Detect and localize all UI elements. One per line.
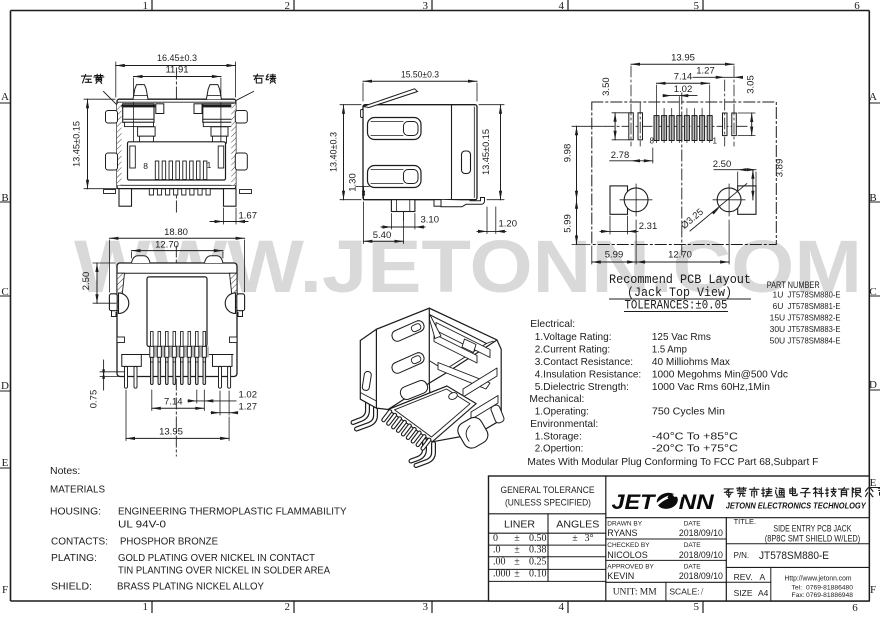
svg-text:CONTACTS:: CONTACTS: — [51, 536, 108, 548]
svg-text:UL 94V-0: UL 94V-0 — [118, 519, 166, 531]
svg-text:GOLD PLATING OVER NICKEL IN CO: GOLD PLATING OVER NICKEL IN CONTACT — [118, 552, 316, 564]
svg-text:TOLERANCES:±0.05: TOLERANCES:±0.05 — [625, 299, 728, 313]
svg-text:A: A — [1, 91, 9, 103]
svg-text:40 Milliohms Max: 40 Milliohms Max — [652, 356, 731, 368]
svg-text:1000 Megohms Min@500 Vdc: 1000 Megohms Min@500 Vdc — [652, 368, 788, 380]
svg-text:Fax:: Fax: — [792, 592, 805, 599]
svg-text:CHECKED BY: CHECKED BY — [607, 542, 650, 549]
svg-text:8: 8 — [143, 161, 148, 171]
svg-text:PHOSPHOR BRONZE: PHOSPHOR BRONZE — [120, 536, 218, 548]
svg-text:3°: 3° — [585, 533, 594, 544]
svg-text:1.02: 1.02 — [239, 390, 258, 401]
svg-text:JT578SM884-E: JT578SM884-E — [788, 336, 841, 346]
svg-text:Mates With Modular Plug Confor: Mates With Modular Plug Conforming To FC… — [527, 456, 818, 468]
svg-text:.0: .0 — [493, 544, 501, 555]
svg-text:F: F — [2, 584, 8, 596]
svg-text:JT578SM881-E: JT578SM881-E — [788, 301, 841, 311]
svg-text:±: ± — [514, 557, 520, 568]
svg-text:7.14: 7.14 — [164, 397, 183, 408]
svg-text:A: A — [869, 91, 877, 103]
svg-text:0: 0 — [493, 533, 498, 544]
svg-text:15.50±0.3: 15.50±0.3 — [401, 70, 439, 81]
svg-text:MM: MM — [640, 588, 657, 598]
svg-text:2018/09/10: 2018/09/10 — [679, 571, 723, 581]
svg-text:A4: A4 — [758, 588, 769, 598]
svg-text:JET: JET — [612, 490, 657, 514]
svg-text:12.70: 12.70 — [668, 250, 692, 261]
svg-text:±: ± — [514, 544, 520, 555]
svg-text:1000 Vac Rms 60Hz,1Min: 1000 Vac Rms 60Hz,1Min — [652, 381, 770, 393]
svg-text:BRASS PLATING NICKEL ALLOY: BRASS PLATING NICKEL ALLOY — [117, 581, 264, 593]
svg-text:REV.: REV. — [734, 572, 753, 582]
svg-text:GENERAL TOLERANCE: GENERAL TOLERANCE — [501, 485, 595, 495]
svg-text:-20°C To +75°C: -20°C To +75°C — [652, 443, 738, 455]
svg-text:1.Operating:: 1.Operating: — [535, 406, 589, 418]
svg-text:RYANS: RYANS — [607, 528, 637, 538]
svg-text:Electrical:: Electrical: — [530, 318, 575, 330]
svg-text:9.98: 9.98 — [563, 144, 574, 163]
svg-text:3.50: 3.50 — [601, 77, 612, 96]
svg-text:1: 1 — [143, 0, 149, 12]
svg-text:7.14: 7.14 — [674, 72, 693, 83]
svg-text:(8P8C SMT SHIELD W/LED): (8P8C SMT SHIELD W/LED) — [765, 534, 861, 544]
svg-text:30U: 30U — [770, 324, 786, 334]
svg-text:±: ± — [514, 569, 520, 580]
svg-text:HOUSING:: HOUSING: — [50, 506, 101, 518]
svg-text:15U: 15U — [770, 313, 786, 323]
svg-text:1: 1 — [143, 601, 149, 613]
svg-text:13.40±0.3: 13.40±0.3 — [329, 132, 340, 172]
svg-text:NN: NN — [679, 490, 715, 514]
svg-text:1.Storage:: 1.Storage: — [535, 430, 582, 442]
svg-text:±: ± — [514, 533, 520, 544]
svg-text:2018/09/10: 2018/09/10 — [679, 528, 723, 538]
svg-text:MATERIALS: MATERIALS — [50, 484, 105, 496]
svg-text:3: 3 — [423, 0, 429, 12]
svg-text:4: 4 — [559, 601, 565, 613]
svg-text:A: A — [760, 572, 766, 582]
svg-text:5: 5 — [694, 0, 700, 12]
svg-text:12.70: 12.70 — [155, 240, 179, 251]
svg-text:JT578SM882-E: JT578SM882-E — [788, 313, 841, 323]
svg-text:JETONN ELECTRONICS TECHNOLOGY: JETONN ELECTRONICS TECHNOLOGY — [726, 501, 867, 511]
svg-text:(UNLESS SPECIFIED): (UNLESS SPECIFIED) — [505, 498, 591, 508]
svg-text:0.38: 0.38 — [529, 544, 547, 555]
svg-text:1.02: 1.02 — [674, 84, 693, 95]
svg-text:E: E — [2, 457, 9, 469]
svg-text:PART NUMBER: PART NUMBER — [767, 280, 820, 290]
svg-text:5.99: 5.99 — [605, 250, 624, 261]
svg-text:1.Voltage Rating:: 1.Voltage Rating: — [535, 331, 612, 343]
svg-text:APPROVED BY: APPROVED BY — [607, 564, 654, 571]
svg-text:DATE: DATE — [684, 564, 702, 571]
svg-text:P/N.: P/N. — [734, 551, 750, 560]
svg-text:5.Dielectric Strength:: 5.Dielectric Strength: — [535, 381, 629, 393]
svg-text:3.89: 3.89 — [775, 159, 786, 178]
svg-text:JT578SM883-E: JT578SM883-E — [788, 324, 841, 334]
svg-text:SIDE ENTRY PCB JACK: SIDE ENTRY PCB JACK — [773, 524, 851, 534]
svg-text:0.10: 0.10 — [529, 569, 547, 580]
svg-text:ENGINEERING THERMOPLASTIC FLAM: ENGINEERING THERMOPLASTIC FLAMMABILITY — [118, 506, 347, 518]
svg-text:2.Current Rating:: 2.Current Rating: — [535, 344, 610, 356]
svg-text:F: F — [870, 584, 876, 596]
svg-text:.000: .000 — [493, 569, 511, 580]
svg-text:0.50: 0.50 — [529, 533, 547, 544]
svg-text:Tel:: Tel: — [792, 585, 803, 592]
svg-text:SHIELD:: SHIELD: — [51, 581, 92, 593]
svg-text:2: 2 — [285, 601, 291, 613]
svg-text:8: 8 — [650, 137, 655, 146]
svg-text:DATE: DATE — [684, 521, 702, 528]
svg-text:2: 2 — [285, 0, 291, 12]
svg-text:1.30: 1.30 — [348, 173, 359, 192]
svg-text:1.20: 1.20 — [499, 219, 518, 230]
svg-text:6: 6 — [854, 0, 860, 12]
svg-text:6: 6 — [852, 602, 858, 613]
svg-text:0.25: 0.25 — [529, 557, 547, 568]
svg-text:3.10: 3.10 — [421, 215, 440, 226]
svg-text:50U: 50U — [770, 336, 786, 346]
svg-text:3: 3 — [423, 601, 429, 613]
svg-text:4.Insulation Resistance:: 4.Insulation Resistance: — [535, 368, 641, 380]
svg-text:1: 1 — [207, 160, 212, 170]
svg-text:0.75: 0.75 — [89, 390, 100, 409]
svg-text:13.95: 13.95 — [159, 427, 183, 438]
svg-text:2018/09/10: 2018/09/10 — [679, 550, 723, 560]
svg-text:2.50: 2.50 — [81, 272, 92, 291]
svg-text:1.5 Amp: 1.5 Amp — [652, 344, 687, 356]
svg-text:DATE: DATE — [684, 542, 702, 549]
svg-text:6U: 6U — [773, 301, 784, 311]
svg-text:1.27: 1.27 — [696, 66, 715, 77]
svg-text:13.45±0.15: 13.45±0.15 — [72, 121, 83, 167]
svg-text:Environmental:: Environmental: — [530, 418, 598, 430]
svg-text:.00: .00 — [493, 557, 506, 568]
svg-text:TITLE.: TITLE. — [734, 517, 757, 526]
svg-text:5.99: 5.99 — [563, 214, 574, 233]
svg-text:1: 1 — [713, 137, 718, 146]
svg-text:ANGLES: ANGLES — [556, 520, 599, 531]
svg-text:750 Cycles Min: 750 Cycles Min — [652, 406, 725, 418]
svg-text:DRAWN BY: DRAWN BY — [607, 521, 642, 528]
svg-text:SIZE: SIZE — [734, 588, 753, 598]
svg-text:0769-81886480: 0769-81886480 — [806, 585, 853, 592]
svg-text:13.95: 13.95 — [671, 53, 695, 64]
svg-text:0769-81886948: 0769-81886948 — [806, 592, 853, 599]
svg-text:D: D — [869, 379, 877, 391]
svg-text:PLATING:: PLATING: — [51, 552, 97, 564]
svg-text:1.27: 1.27 — [239, 402, 258, 413]
svg-text:UNIT:: UNIT: — [613, 588, 638, 598]
svg-text:TIN PLANTING OVER NICKEL IN SO: TIN PLANTING OVER NICKEL IN SOLDER AREA — [118, 565, 330, 577]
svg-text:NICOLOS: NICOLOS — [607, 550, 648, 560]
svg-text:1.67: 1.67 — [239, 211, 258, 222]
svg-text:±: ± — [572, 533, 578, 544]
svg-text:13.45±0.15: 13.45±0.15 — [481, 129, 492, 175]
svg-text:Mechanical:: Mechanical: — [529, 393, 584, 405]
svg-text:JT578SM880-E: JT578SM880-E — [788, 290, 841, 300]
svg-text:5: 5 — [694, 601, 700, 613]
svg-text:3.05: 3.05 — [746, 75, 757, 94]
svg-text:2.50: 2.50 — [713, 159, 732, 170]
svg-text:2.31: 2.31 — [639, 221, 658, 232]
svg-text:2.78: 2.78 — [611, 150, 630, 161]
svg-text:3.Contact Resistance:: 3.Contact Resistance: — [535, 356, 633, 368]
svg-text:125 Vac Rms: 125 Vac Rms — [652, 331, 711, 343]
svg-text:SCALE:: SCALE: — [669, 587, 699, 597]
svg-text:2.Opertion:: 2.Opertion: — [535, 443, 584, 455]
svg-text:18.80: 18.80 — [164, 227, 188, 238]
svg-text:4: 4 — [559, 0, 565, 12]
svg-text:1U: 1U — [773, 290, 784, 300]
svg-text:11.91: 11.91 — [165, 65, 188, 76]
svg-text:-40°C To +85°C: -40°C To +85°C — [652, 430, 738, 442]
svg-text:KEVIN: KEVIN — [607, 571, 634, 581]
svg-text:Http://www.jetonn.com: Http://www.jetonn.com — [785, 576, 852, 583]
svg-text:5.40: 5.40 — [373, 230, 392, 241]
svg-text:LINER: LINER — [504, 520, 535, 531]
svg-text:JT578SM880-E: JT578SM880-E — [759, 550, 829, 562]
svg-text:Notes:: Notes: — [50, 465, 80, 477]
svg-text:D: D — [1, 380, 9, 392]
svg-text:16.45±0.3: 16.45±0.3 — [157, 53, 197, 64]
